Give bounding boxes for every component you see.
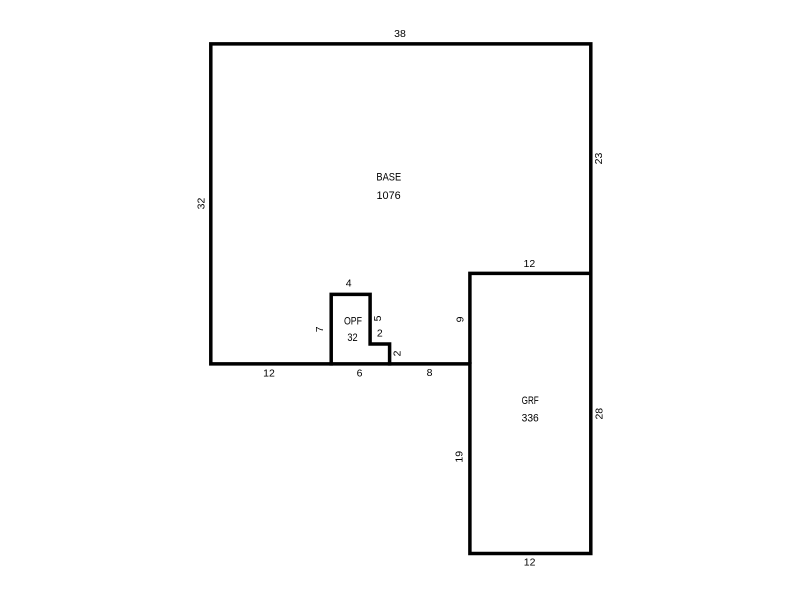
svg-text:BASE: BASE <box>376 171 401 183</box>
svg-text:38: 38 <box>394 28 406 40</box>
svg-text:1076: 1076 <box>377 190 401 202</box>
svg-text:32: 32 <box>196 198 208 210</box>
svg-text:8: 8 <box>427 367 433 379</box>
svg-text:GRF: GRF <box>522 395 539 407</box>
svg-text:32: 32 <box>347 332 357 344</box>
svg-text:5: 5 <box>372 315 384 321</box>
svg-text:19: 19 <box>454 451 466 463</box>
svg-text:4: 4 <box>346 278 352 290</box>
svg-text:OPF: OPF <box>344 316 362 328</box>
svg-text:12: 12 <box>524 557 536 569</box>
svg-text:12: 12 <box>263 368 275 380</box>
svg-text:9: 9 <box>454 316 466 322</box>
svg-text:28: 28 <box>594 408 606 420</box>
svg-text:7: 7 <box>314 326 326 332</box>
svg-text:2: 2 <box>392 350 404 356</box>
svg-text:23: 23 <box>593 153 605 165</box>
svg-text:2: 2 <box>377 328 383 340</box>
svg-text:6: 6 <box>357 368 363 380</box>
svg-text:336: 336 <box>522 412 539 424</box>
svg-text:12: 12 <box>524 258 536 270</box>
